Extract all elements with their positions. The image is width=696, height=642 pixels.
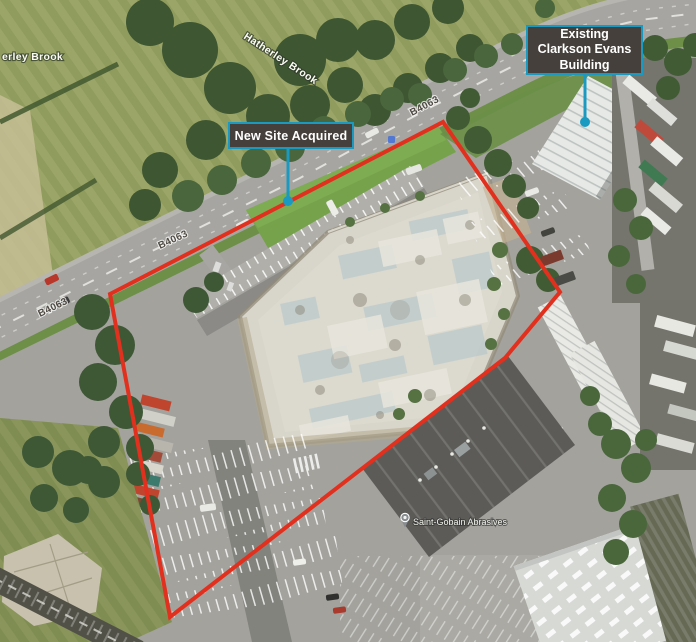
callout-new-site-label: New Site Acquired [235, 129, 348, 143]
existing-callout-dot [580, 117, 590, 127]
road-sign-icon [388, 136, 395, 143]
callout-new-site: New Site Acquired [228, 122, 354, 149]
callout-existing-line3: Building [560, 58, 610, 73]
callout-existing-line1: Existing [560, 27, 609, 42]
label-saint-gobain: Saint-Gobain Abrasives [413, 517, 508, 527]
satellite-imagery: erley Brook Hatherley Brook B4063 B4063 … [0, 0, 696, 642]
callout-existing-building: Existing Clarkson Evans Building [526, 25, 643, 75]
callout-existing-line2: Clarkson Evans [538, 42, 632, 57]
new-site-callout-dot [283, 196, 293, 206]
aerial-site-map: erley Brook Hatherley Brook B4063 B4063 … [0, 0, 696, 642]
label-brook-edge: erley Brook [2, 51, 63, 63]
